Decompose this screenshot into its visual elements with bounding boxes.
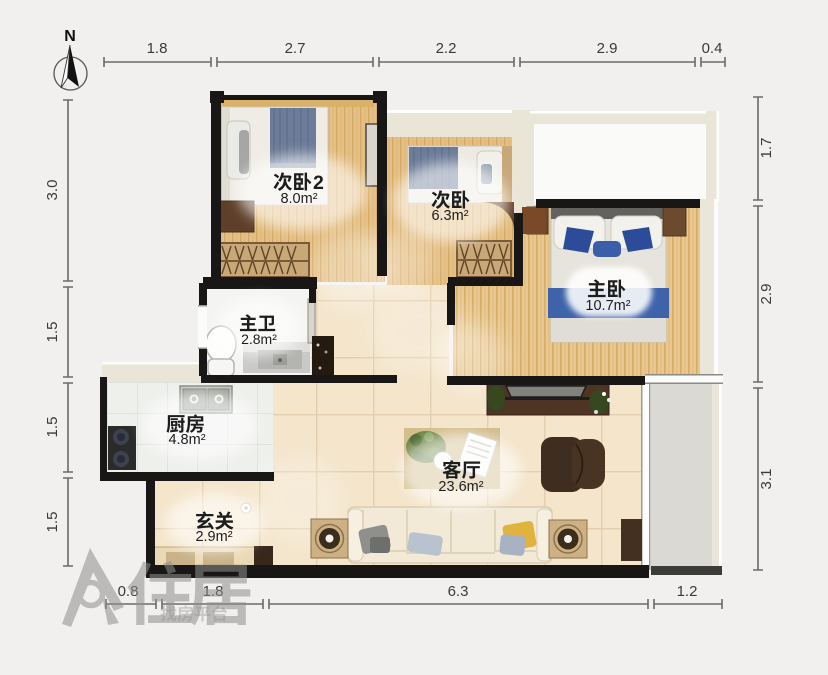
svg-text:23.6m²: 23.6m²	[438, 479, 483, 495]
svg-text:2.7: 2.7	[285, 40, 306, 57]
svg-text:N: N	[64, 28, 76, 45]
svg-text:6.3: 6.3	[448, 583, 469, 600]
svg-text:2.9: 2.9	[597, 40, 618, 57]
svg-text:10.7m²: 10.7m²	[585, 298, 630, 314]
svg-text:0.4: 0.4	[702, 40, 723, 57]
svg-text:1.8: 1.8	[147, 40, 168, 57]
svg-text:2.9m²: 2.9m²	[195, 529, 232, 545]
svg-text:3.1: 3.1	[758, 469, 775, 490]
svg-text:2.9: 2.9	[758, 284, 775, 305]
svg-text:1.2: 1.2	[677, 583, 698, 600]
svg-text:6.3m²: 6.3m²	[431, 208, 468, 224]
svg-text:2.2: 2.2	[436, 40, 457, 57]
svg-text:3.0: 3.0	[44, 180, 61, 201]
svg-text:1.5: 1.5	[44, 512, 61, 533]
svg-text:4.8m²: 4.8m²	[168, 432, 205, 448]
svg-text:2.8m²: 2.8m²	[241, 331, 277, 347]
svg-text:1.5: 1.5	[44, 417, 61, 438]
svg-text:1.7: 1.7	[758, 138, 775, 159]
svg-text:1.5: 1.5	[44, 322, 61, 343]
svg-text:8.0m²: 8.0m²	[280, 191, 317, 207]
